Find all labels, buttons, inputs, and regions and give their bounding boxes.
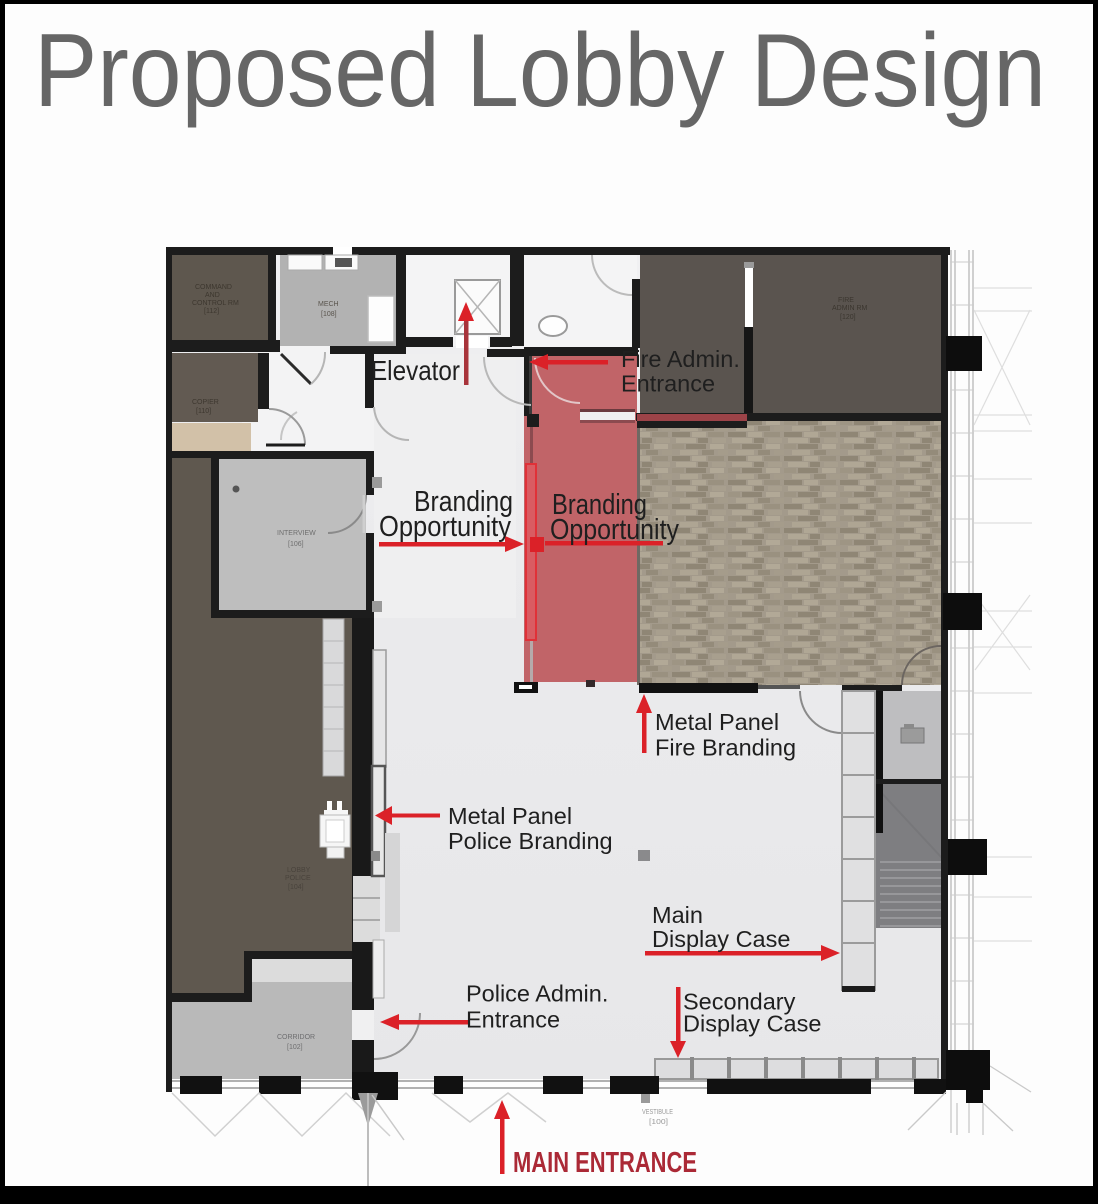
svg-text:CONTROL RM: CONTROL RM: [192, 300, 239, 307]
svg-text:Opportunity: Opportunity: [550, 514, 679, 546]
svg-text:Display Case: Display Case: [652, 926, 790, 952]
svg-text:Fire Branding: Fire Branding: [655, 735, 796, 761]
svg-text:[120]: [120]: [840, 314, 856, 321]
svg-text:AND: AND: [205, 292, 220, 299]
svg-text:[112]: [112]: [204, 308, 219, 315]
svg-text:Police Admin.: Police Admin.: [466, 981, 608, 1007]
svg-text:Opportunity: Opportunity: [379, 511, 511, 543]
svg-text:Main: Main: [652, 902, 703, 928]
svg-text:LOBBY: LOBBY: [287, 867, 311, 874]
svg-text:ADMIN RM: ADMIN RM: [832, 305, 868, 312]
svg-text:Fire Admin.: Fire Admin.: [621, 346, 740, 372]
svg-text:COMMAND: COMMAND: [195, 284, 232, 291]
svg-text:INTERVIEW: INTERVIEW: [277, 530, 316, 537]
svg-text:Proposed Lobby Design: Proposed Lobby Design: [34, 12, 1046, 128]
svg-text:[108]: [108]: [321, 311, 337, 318]
svg-text:POLICE: POLICE: [285, 875, 311, 882]
svg-text:[102]: [102]: [287, 1044, 303, 1051]
svg-text:[106]: [106]: [288, 541, 304, 548]
svg-text:[110]: [110]: [196, 408, 211, 415]
svg-text:COPIER: COPIER: [192, 399, 219, 406]
svg-text:Elevator: Elevator: [371, 355, 460, 386]
svg-text:Entrance: Entrance: [621, 371, 715, 397]
svg-text:Display Case: Display Case: [683, 1011, 821, 1037]
svg-text:Entrance: Entrance: [466, 1007, 560, 1033]
svg-text:Metal Panel: Metal Panel: [448, 803, 572, 829]
svg-text:Police Branding: Police Branding: [448, 828, 613, 854]
svg-text:VESTIBULE: VESTIBULE: [642, 1109, 673, 1116]
svg-text:CORRIDOR: CORRIDOR: [277, 1034, 315, 1041]
svg-text:[100]: [100]: [649, 1119, 668, 1126]
svg-text:[104]: [104]: [288, 884, 304, 891]
svg-text:MAIN ENTRANCE: MAIN ENTRANCE: [513, 1147, 697, 1179]
svg-text:MECH: MECH: [318, 301, 339, 308]
svg-text:Metal Panel: Metal Panel: [655, 709, 779, 735]
svg-text:FIRE: FIRE: [838, 297, 854, 304]
